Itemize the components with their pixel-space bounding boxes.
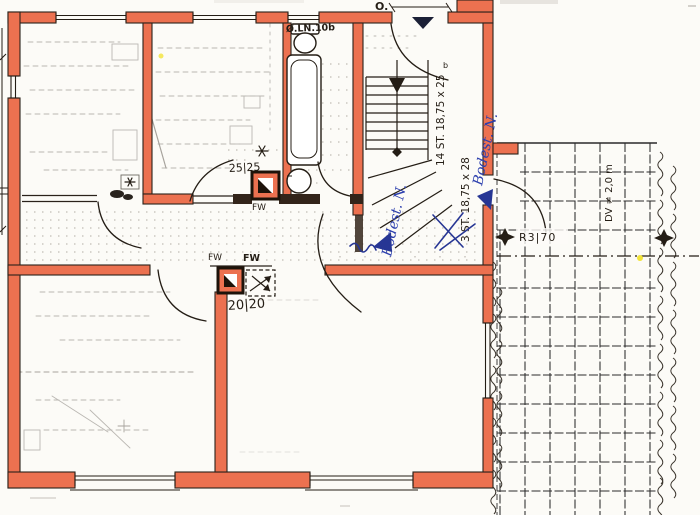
hall-code-right: FW xyxy=(243,253,260,264)
wall-left xyxy=(8,98,20,488)
wall-bath-right xyxy=(353,23,363,215)
door-arc-living xyxy=(318,214,361,312)
wall-top xyxy=(126,12,193,23)
chimney-icon-upper xyxy=(252,172,279,199)
floor-plan-scan: O. Ø.LN.10b 25|25 FW FW FW 20|20 14 ST. … xyxy=(0,0,700,515)
door-arc-bathroom xyxy=(318,162,350,196)
bathroom-fixtures xyxy=(287,24,321,193)
door-mark-label: b xyxy=(443,61,448,70)
window-left xyxy=(9,76,19,98)
dark-wall-bands xyxy=(22,194,363,266)
duct-label: Ø.LN.10b xyxy=(286,22,336,35)
shaft-upper-dim: 25|25 xyxy=(228,160,260,175)
window-top-3 xyxy=(288,13,319,22)
windows xyxy=(9,13,492,490)
walls xyxy=(8,0,518,488)
chimney-icon-lower xyxy=(218,268,243,293)
door-arc-room1 xyxy=(98,202,141,248)
entrance-triangle-icon xyxy=(412,17,434,29)
wall-right xyxy=(483,205,493,268)
stair-count-lower: 3 ST. 18,75 x 28 xyxy=(460,157,472,242)
wall-living-top xyxy=(325,265,493,275)
vent-shaft-icon xyxy=(246,270,275,296)
window-bottom-2 xyxy=(305,473,418,490)
dimension-line-left xyxy=(0,28,8,235)
terrace-tile-grid xyxy=(497,143,657,515)
terrace-height-label: DV ≠ 2,0 m xyxy=(604,164,615,222)
blue-pen-marks: Bodest. N. Bodest. N. xyxy=(350,112,501,259)
door-arc-terrace xyxy=(494,179,546,232)
asterisk-icon-hall xyxy=(256,146,268,156)
stair-count-main: 14 ST. 18,75 x 25 xyxy=(435,74,447,166)
window-right xyxy=(484,323,492,398)
wall-right xyxy=(483,268,493,323)
star-marker-left xyxy=(495,228,515,246)
wall-bottom xyxy=(413,472,493,488)
wall-top xyxy=(448,12,493,23)
terrace-stub-wall xyxy=(493,143,518,154)
floor-plan-drawing: O. Ø.LN.10b 25|25 FW FW FW 20|20 14 ST. … xyxy=(0,0,700,515)
shaft-lower-dim: 20|20 xyxy=(227,296,265,314)
wall-bottom xyxy=(8,472,75,488)
door-arc-room2 xyxy=(190,160,233,201)
door-arc-entrance xyxy=(391,24,448,80)
hall-code-left: FW xyxy=(208,253,222,263)
wall-right xyxy=(483,398,493,472)
entrance-marker xyxy=(389,3,452,29)
wall-hall-stub xyxy=(143,194,193,204)
compass-label: O. xyxy=(375,0,388,13)
wall-room3-living xyxy=(215,292,227,472)
wall-left xyxy=(8,12,20,76)
stairwell-pillar xyxy=(457,0,493,12)
wall-top xyxy=(256,12,288,23)
wall-hall-bottom xyxy=(8,265,150,275)
window-top-2 xyxy=(193,13,256,22)
shaft-symbols xyxy=(218,172,279,296)
sink-icon xyxy=(287,169,311,193)
shaft-upper-code: FW xyxy=(252,203,266,213)
wall-top xyxy=(319,12,392,23)
door-arc-room3 xyxy=(158,270,206,321)
window-top-1 xyxy=(56,13,126,22)
terrace-hatch-bands xyxy=(491,152,676,515)
toilet-bowl-icon xyxy=(294,33,316,53)
wall-room1-room2 xyxy=(143,23,152,194)
window-bottom-1 xyxy=(70,473,180,490)
wall-bottom xyxy=(175,472,310,488)
railing-label: R3|70 xyxy=(519,231,556,244)
asterisk-icon-room1 xyxy=(121,175,139,189)
